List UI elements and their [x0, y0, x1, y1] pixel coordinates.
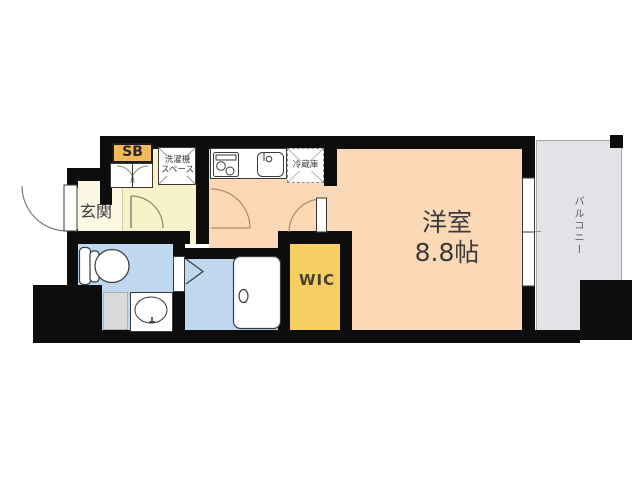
- genkan-label: 玄関: [80, 203, 112, 221]
- shoe-box-door-arcs: [117, 164, 148, 187]
- balcony-label: バルコニー: [572, 196, 583, 266]
- hallway-door: [131, 196, 163, 228]
- bathtub-icon: [234, 257, 281, 329]
- main-room-door: [289, 198, 327, 232]
- main-room-size: 8.8帖: [380, 238, 514, 268]
- stove-icon: [214, 153, 239, 177]
- toilet-icon: [80, 248, 130, 285]
- corridor-door: [211, 189, 250, 228]
- balcony-window: [523, 178, 542, 286]
- wash-basin-icon: [135, 297, 167, 323]
- entrance-door: [22, 185, 77, 231]
- kitchen-sink-icon: [258, 153, 284, 177]
- wic-label: WIC: [299, 272, 335, 289]
- main-room-label: 洋室 8.8帖: [380, 208, 514, 268]
- refrigerator-label: 冷蔵庫: [291, 161, 320, 171]
- floorplan-canvas: SB: [0, 0, 640, 480]
- main-room-name: 洋室: [380, 208, 514, 238]
- fixture-overlay: [0, 0, 640, 480]
- laundry-label-line2: スペース: [161, 166, 194, 176]
- folding-door-triangle: [186, 259, 203, 284]
- laundry-label: 洗濯機 スペース: [161, 156, 194, 176]
